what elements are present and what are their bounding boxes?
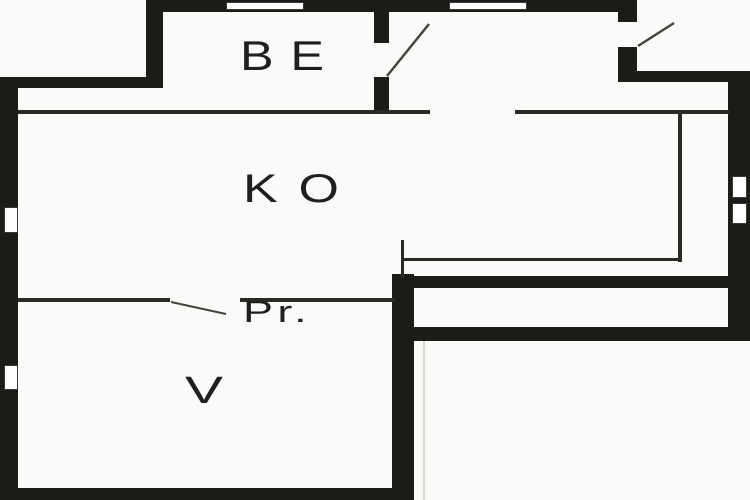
line-terrace-north [402, 258, 681, 261]
room-label-ko: KO [243, 169, 360, 209]
wall-be-west [146, 0, 163, 88]
pr-leader-line [171, 302, 226, 314]
entry-door-swing-line [638, 23, 674, 46]
room-label-be: BE [240, 35, 341, 77]
wall-west [0, 77, 18, 500]
line-ko-east [678, 110, 682, 262]
line-ko-north-west [18, 110, 430, 114]
door-opening-entry [618, 22, 637, 47]
line-ko-stub [401, 240, 404, 278]
wall-northwest-step [0, 77, 163, 88]
wall-v-east [392, 274, 414, 500]
wall-terrace-upper [404, 276, 728, 288]
scan-crease-line [423, 341, 425, 500]
wall-north [146, 0, 637, 12]
window-symbol-north-be [226, 2, 304, 10]
window-symbol-east-lower [732, 203, 747, 224]
window-symbol-north-entry [449, 2, 527, 10]
window-symbol-east-upper [732, 176, 747, 198]
line-ko-north-east [515, 110, 730, 114]
window-symbol-west-ko [4, 207, 18, 233]
wall-south [0, 488, 414, 500]
floor-plan-canvas: BE KO Pr. V [0, 0, 750, 500]
wall-terrace-lower [404, 327, 728, 341]
be-door-swing-line [387, 24, 429, 76]
room-label-pr: Pr. [243, 296, 311, 327]
door-opening-be [374, 43, 389, 77]
window-symbol-west-v [4, 365, 18, 390]
line-pr-west [18, 298, 170, 302]
room-label-v: V [185, 372, 223, 410]
